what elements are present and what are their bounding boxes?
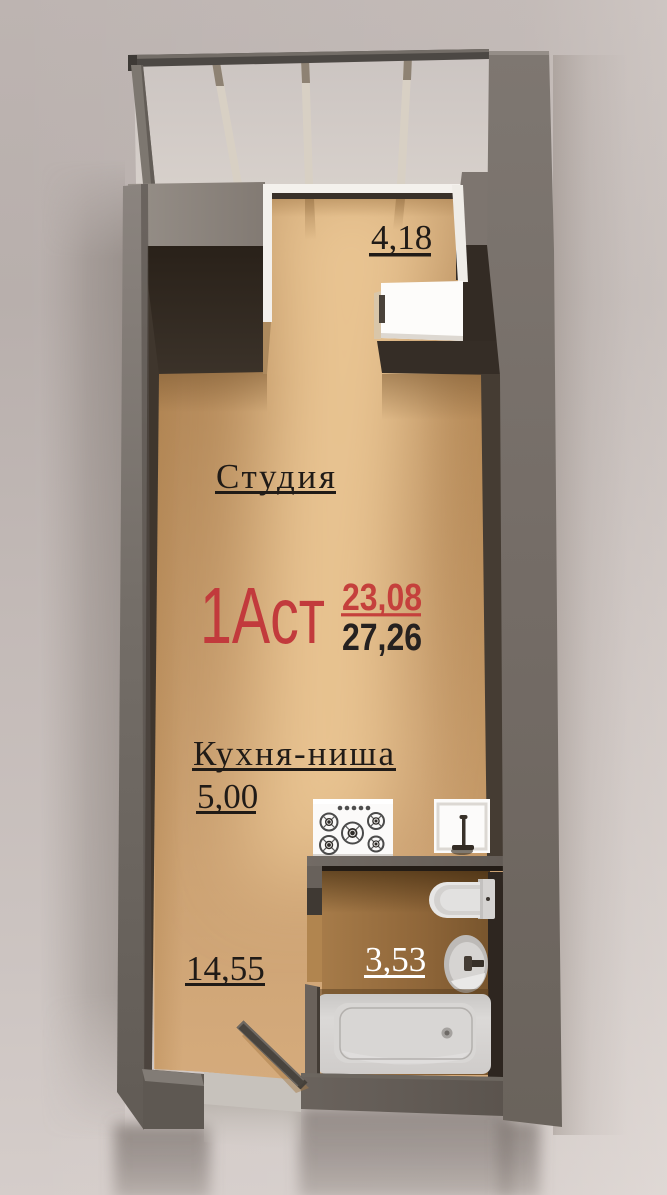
svg-text:4,18: 4,18 (371, 218, 432, 257)
svg-text:14,55: 14,55 (186, 949, 265, 988)
svg-text:23,08: 23,08 (342, 577, 422, 619)
svg-text:1Аст: 1Аст (200, 571, 325, 660)
svg-text:5,00: 5,00 (197, 777, 258, 816)
svg-text:27,26: 27,26 (342, 617, 422, 659)
svg-text:3,53: 3,53 (365, 940, 426, 979)
svg-text:Кухня-ниша: Кухня-ниша (193, 734, 394, 773)
